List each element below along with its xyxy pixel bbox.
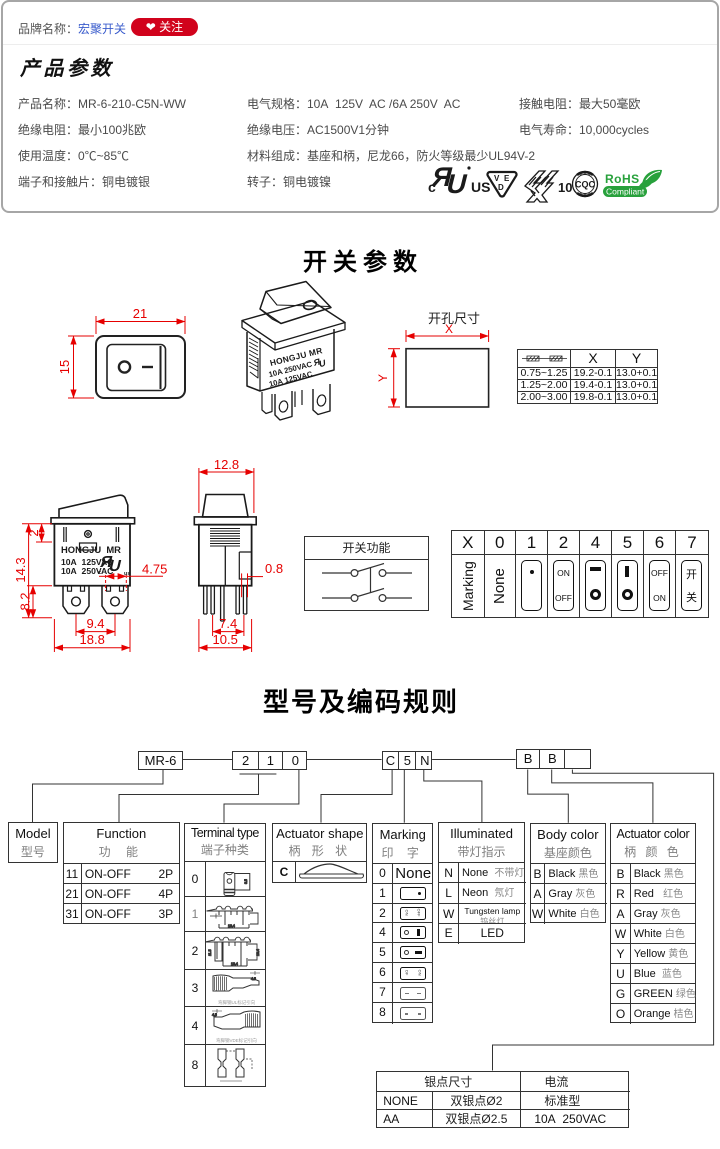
svg-text:12.8: 12.8 <box>214 457 239 472</box>
svg-text:10: 10 <box>558 180 572 195</box>
svg-text:14.3: 14.3 <box>13 557 28 582</box>
svg-text:4.5: 4.5 <box>251 977 256 981</box>
svg-text:21: 21 <box>133 306 147 321</box>
svg-text:X: X <box>445 322 453 336</box>
svg-text:10.4: 10.4 <box>231 962 238 966</box>
svg-text:9.4: 9.4 <box>86 616 104 631</box>
svg-text:7.4: 7.4 <box>219 616 237 631</box>
svg-text:4.5: 4.5 <box>212 1013 217 1017</box>
svg-text:D: D <box>498 183 504 192</box>
svg-text:0.8: 0.8 <box>265 561 283 576</box>
svg-text:CQC: CQC <box>575 180 596 190</box>
svg-text:E: E <box>504 174 510 183</box>
svg-text:Y: Y <box>376 374 390 382</box>
svg-text:弯脚钢UL标记引向: 弯脚钢UL标记引向 <box>218 999 256 1006</box>
svg-text:2: 2 <box>26 529 41 536</box>
svg-text:8.2: 8.2 <box>18 592 33 610</box>
svg-text:V: V <box>494 174 500 183</box>
svg-text:10.5: 10.5 <box>213 632 238 647</box>
svg-text:开孔尺寸: 开孔尺寸 <box>428 311 480 326</box>
svg-text:15: 15 <box>57 360 72 374</box>
svg-text:18.8: 18.8 <box>80 632 105 647</box>
svg-text:U: U <box>319 358 326 370</box>
svg-text:c: c <box>98 570 101 576</box>
svg-text:US: US <box>471 179 490 195</box>
svg-text:11.5: 11.5 <box>208 949 212 956</box>
svg-text:10.4: 10.4 <box>228 924 235 928</box>
svg-text:10.4: 10.4 <box>256 949 260 956</box>
svg-text:4.75: 4.75 <box>142 562 167 577</box>
svg-text:3.5: 3.5 <box>244 879 248 884</box>
svg-text:弯脚钢VDE标记引向: 弯脚钢VDE标记引向 <box>216 1037 257 1044</box>
svg-text:RoHS: RoHS <box>605 172 640 186</box>
